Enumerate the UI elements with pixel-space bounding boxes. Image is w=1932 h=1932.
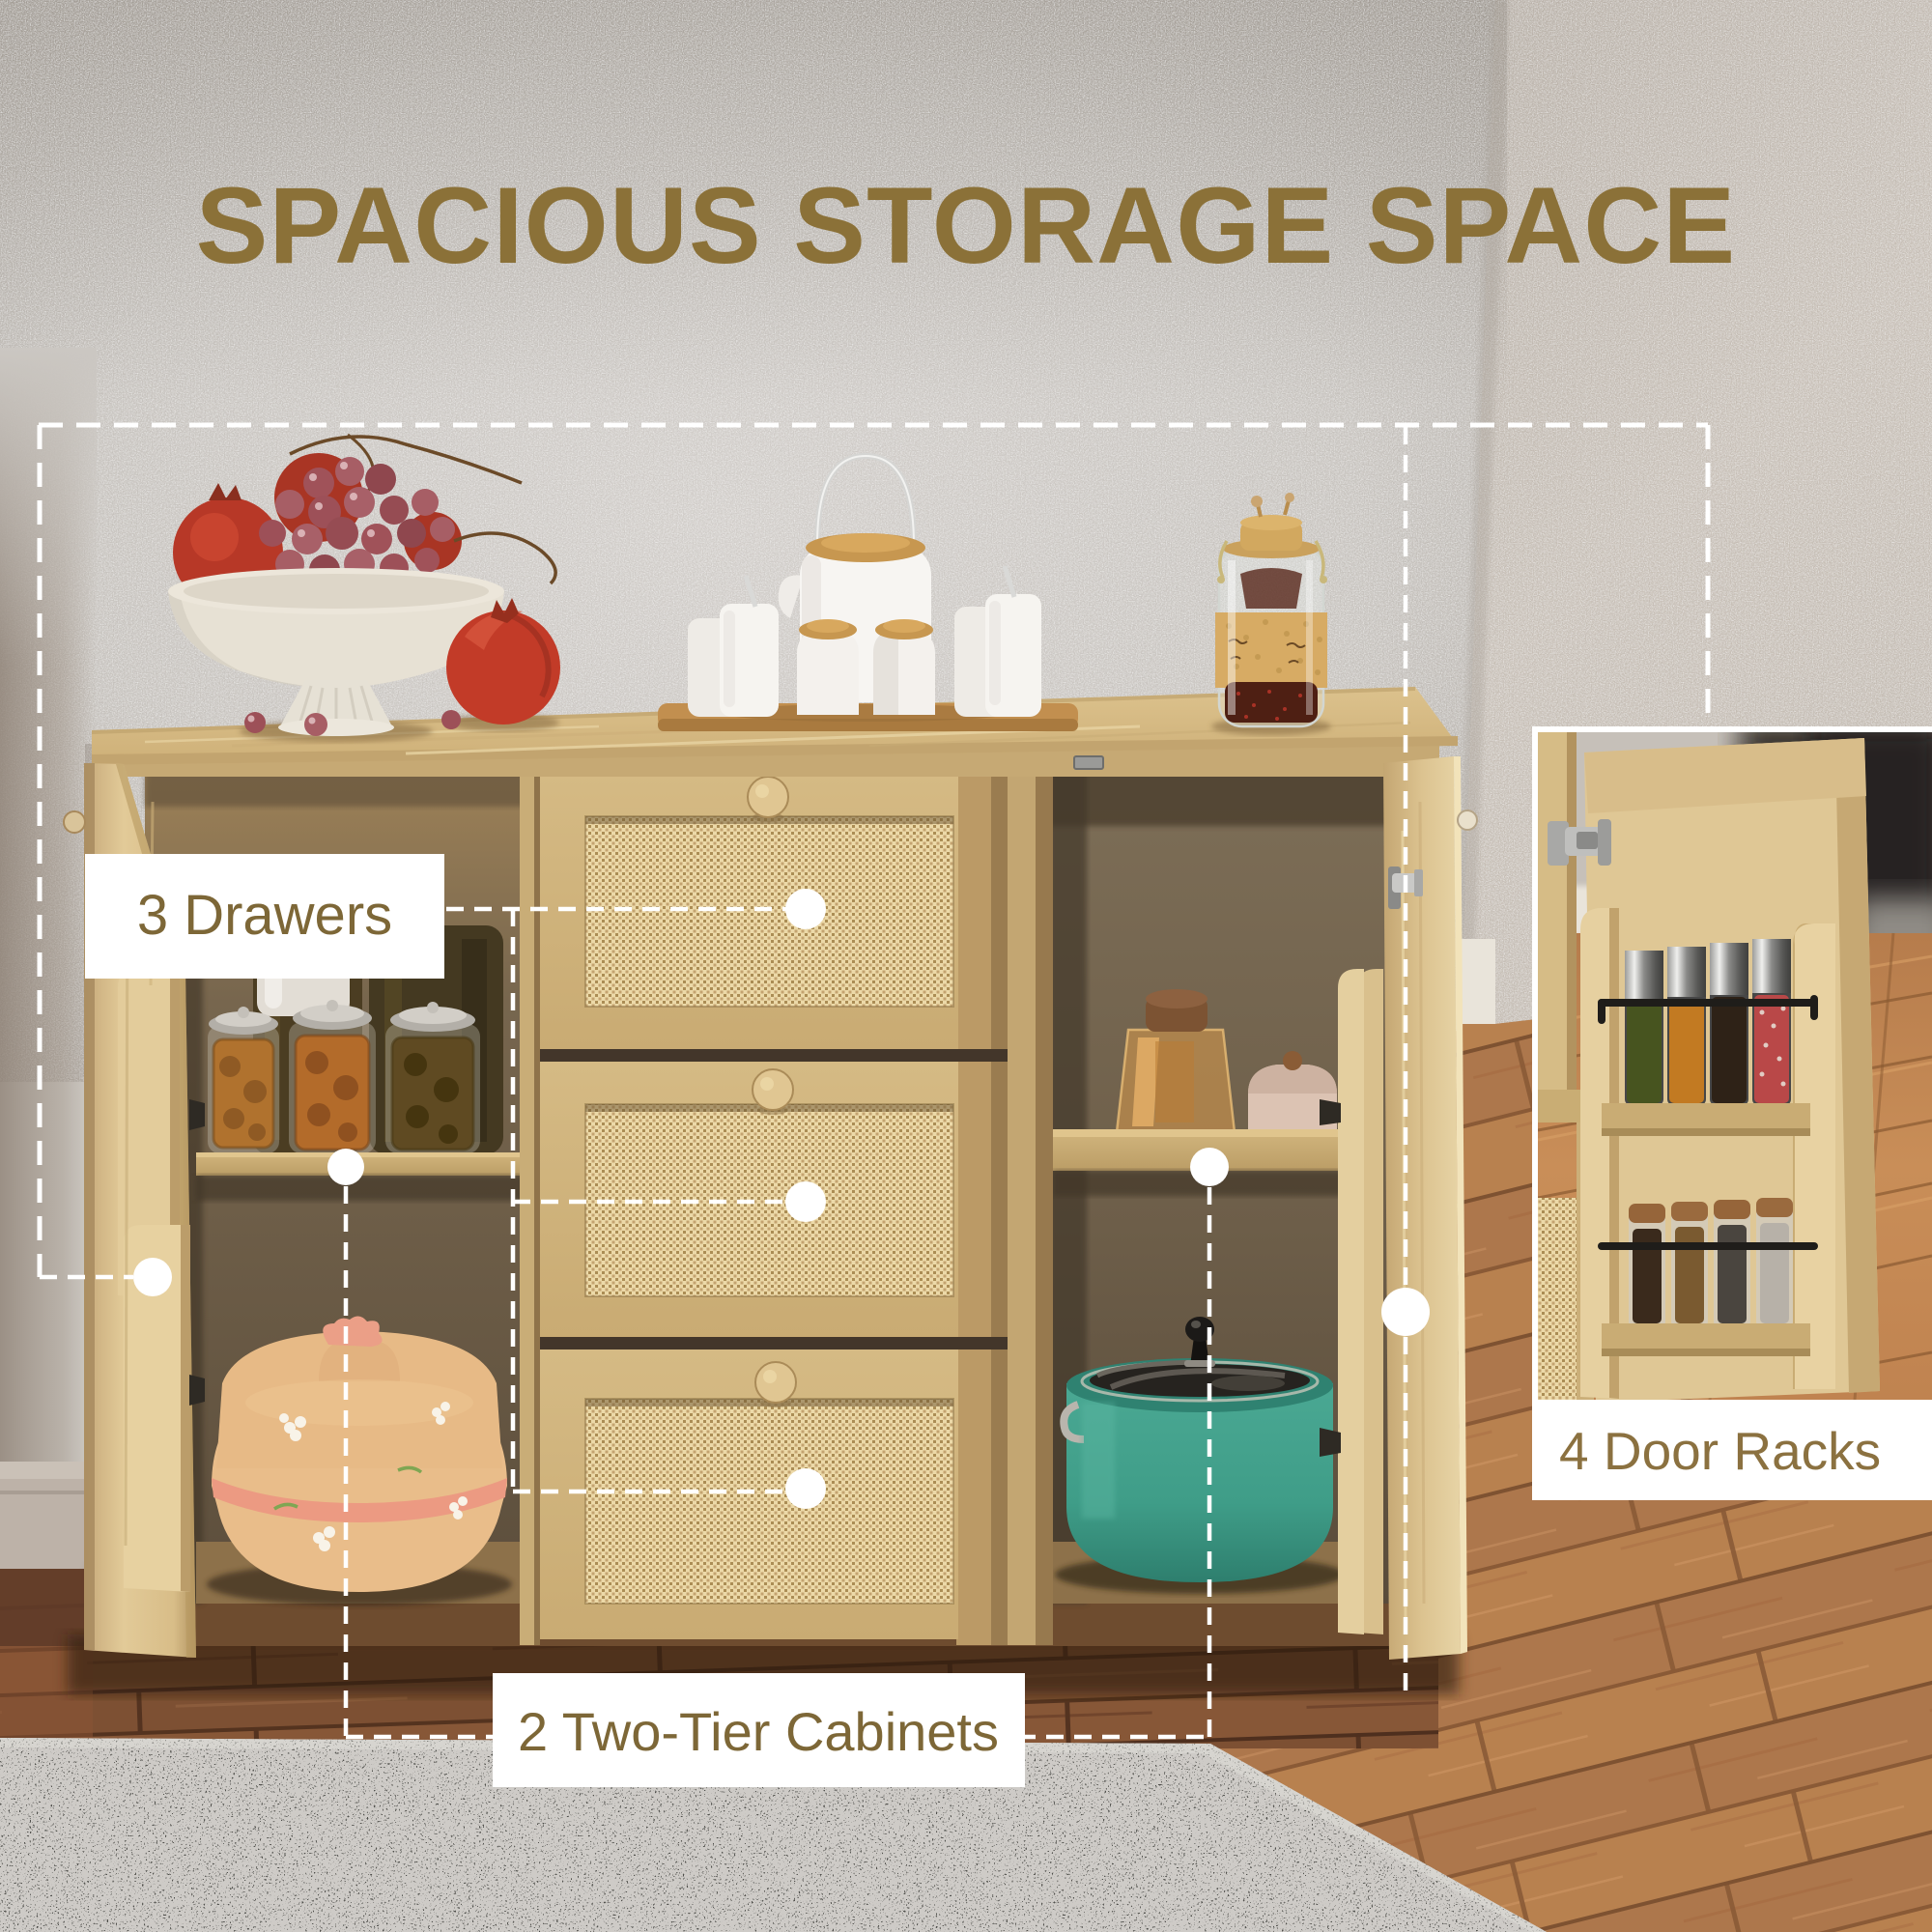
svg-text:4 Door Racks: 4 Door Racks — [1559, 1421, 1881, 1481]
svg-text:2 Two-Tier Cabinets: 2 Two-Tier Cabinets — [518, 1701, 999, 1762]
svg-text:3 Drawers: 3 Drawers — [137, 884, 392, 947]
svg-text:SPACIOUS STORAGE SPACE: SPACIOUS STORAGE SPACE — [196, 165, 1737, 286]
